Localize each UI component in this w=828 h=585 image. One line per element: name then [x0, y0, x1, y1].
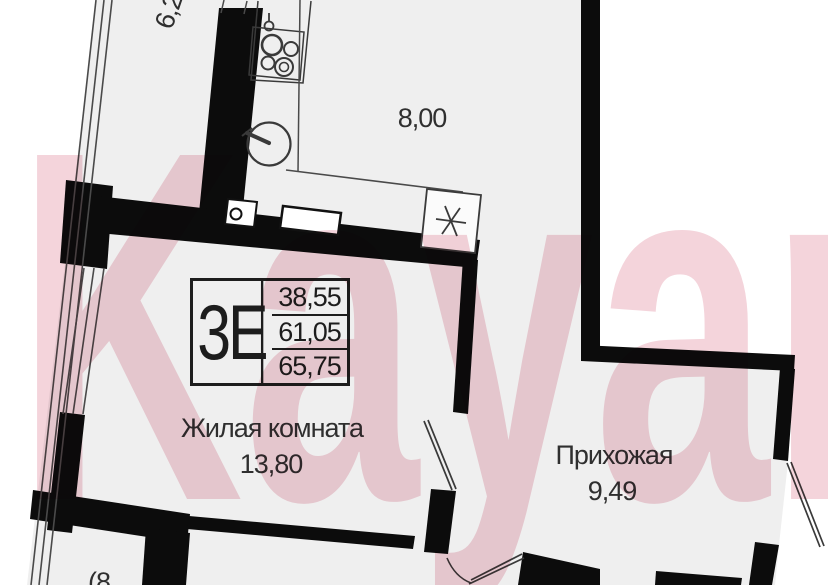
bottom-room-area-label: (8 [88, 567, 110, 585]
unit-info-table: 3Е 38,55 61,05 65,75 [190, 278, 350, 386]
living-room-name-label: Жилая комната [181, 413, 363, 444]
living-room-area-label: 13,80 [240, 449, 303, 480]
living-bottom-corner-wall [142, 528, 190, 585]
unit-living-area: 38,55 [272, 281, 347, 316]
unit-main-area: 61,05 [272, 316, 347, 351]
outer-right-wall [581, 0, 600, 354]
kitchen-area-label: 8,00 [398, 103, 447, 134]
hallway-area-label: 9,49 [588, 476, 637, 507]
hallway-name-label: Прихожая [555, 440, 672, 471]
vent-shaft-icon [421, 189, 481, 253]
floor-plan-drawing [0, 0, 828, 585]
door-leaf-entrance [787, 462, 824, 547]
floor-area [27, 0, 794, 585]
unit-area-rows: 38,55 61,05 65,75 [272, 281, 347, 383]
floor-plan: 6,2 8,00 Жилая комната 13,80 Прихожая 9,… [0, 0, 828, 585]
unit-type-label: 3Е [202, 281, 264, 383]
unit-total-area: 65,75 [272, 350, 347, 383]
